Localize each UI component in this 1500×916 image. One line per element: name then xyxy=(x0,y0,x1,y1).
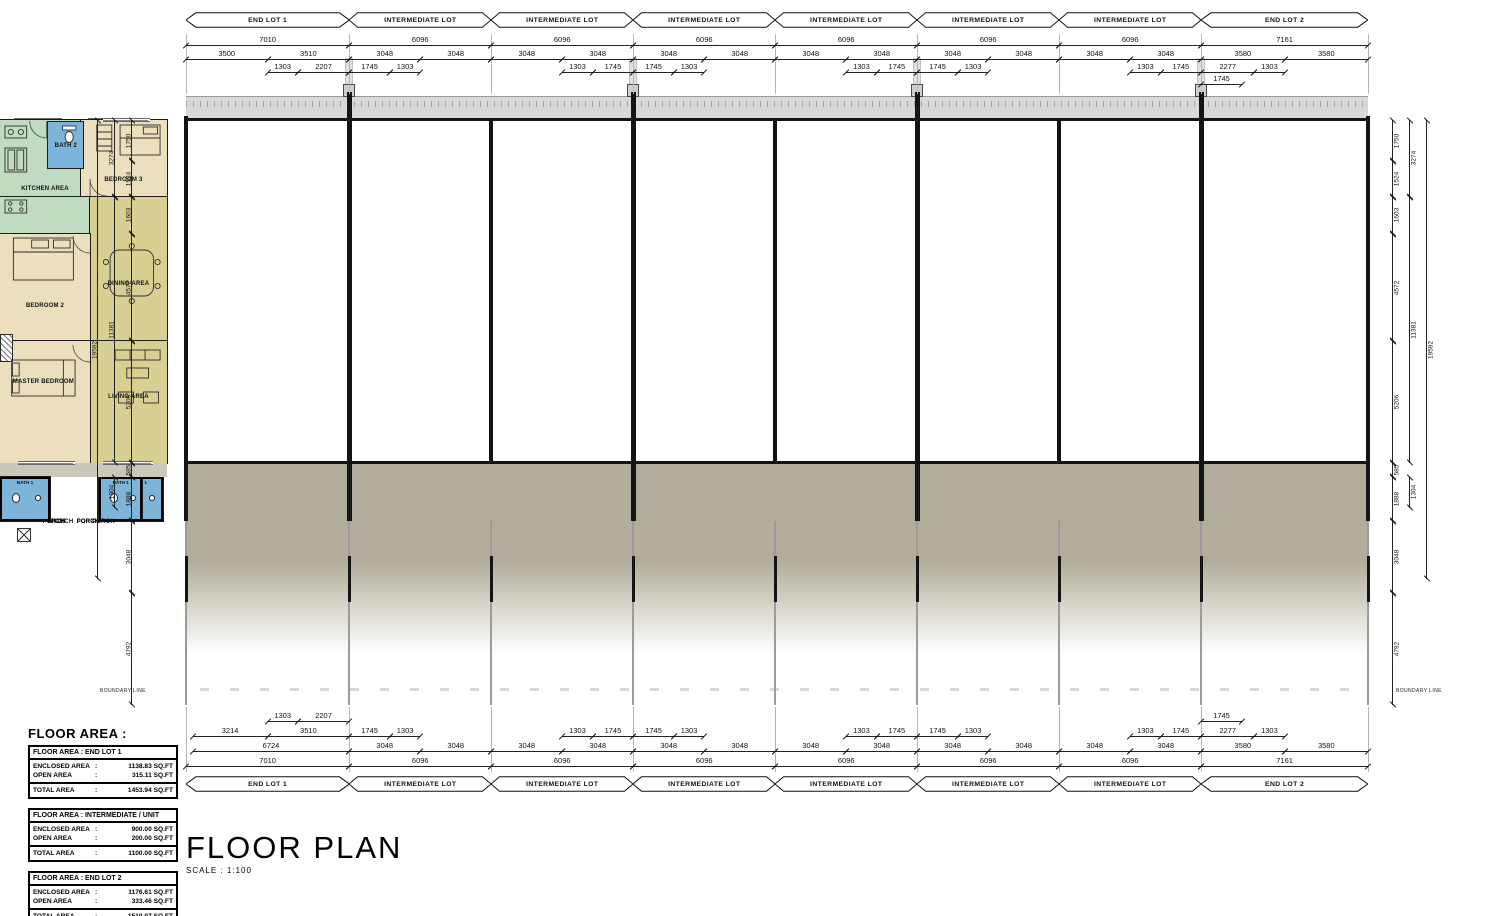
porch-divider xyxy=(490,521,492,705)
sink-icon xyxy=(35,495,41,501)
dimension-value: 3048 xyxy=(1015,741,1032,750)
dimension-value: 1750 xyxy=(1394,133,1401,147)
dimension-value: 2207 xyxy=(315,711,332,720)
dimension-value: 1745 xyxy=(605,62,622,71)
dimension-value: 1603 xyxy=(126,208,133,222)
lot-banner-label: INTERMEDIATE LOT xyxy=(633,12,775,28)
window-line xyxy=(103,120,148,121)
dimension-segment: 1303 xyxy=(958,727,988,737)
dimension-value: 4572 xyxy=(126,281,133,295)
dimension-value: 3274 xyxy=(1411,151,1418,165)
lot-banner-label: INTERMEDIATE LOT xyxy=(491,776,633,792)
dimension-segment: 6096 xyxy=(917,757,1059,767)
porch-column-marker xyxy=(17,528,31,542)
porch-divider-wall xyxy=(1367,556,1370,602)
dimension-value: 3510 xyxy=(300,726,317,735)
lot-banner-label: INTERMEDIATE LOT xyxy=(917,12,1059,28)
dimension-segment: 1303 xyxy=(1130,727,1160,737)
dimension-segment: 1303 xyxy=(562,63,592,73)
dimension-value: 6096 xyxy=(1122,35,1139,44)
dimension-segment: 1745 xyxy=(917,727,958,737)
dimension-value: 3048 xyxy=(376,49,393,58)
room-bedroom3 xyxy=(80,120,167,197)
porch-divider-wall xyxy=(1200,556,1203,602)
dimension-value: 1303 xyxy=(1261,62,1278,71)
grass-texture xyxy=(200,688,1360,691)
dimension-segment: 1303 xyxy=(958,63,988,73)
dimension-value: 3500 xyxy=(218,49,235,58)
dimension-segment: 7161 xyxy=(1201,757,1368,767)
porch-divider xyxy=(632,521,634,705)
room-label-master: MASTER BEDROOM xyxy=(13,379,74,385)
dimension-segment: 3048 xyxy=(704,742,775,752)
lot-banner-label: INTERMEDIATE LOT xyxy=(349,12,491,28)
table-row: ENCLOSED AREA:1138.83 SQ.FT xyxy=(33,762,173,771)
dimension-segment-vertical: 5206 xyxy=(131,341,132,463)
dimension-value: 3048 xyxy=(518,49,535,58)
dimension-value: 1745 xyxy=(1173,726,1190,735)
dimension-segment: 3580 xyxy=(1201,742,1284,752)
porch-divider-wall xyxy=(348,556,351,602)
dimension-segment: 7161 xyxy=(1201,36,1368,46)
dimension-value: 3048 xyxy=(589,49,606,58)
dimension-value: 1745 xyxy=(889,62,906,71)
dimension-segment: 6096 xyxy=(491,36,633,46)
table-total-row: TOTAL AREA:1100.00 SQ.FT xyxy=(33,849,173,858)
dimension-value: 585 xyxy=(1394,465,1401,476)
dimension-segment: 6096 xyxy=(1059,757,1201,767)
table-row: OPEN AREA:333.46 SQ.FT xyxy=(33,897,173,906)
dimension-segment: 6096 xyxy=(917,36,1059,46)
dimension-value: 1745 xyxy=(361,726,378,735)
dimension-value: 1745 xyxy=(889,726,906,735)
dimension-segment: 1303 xyxy=(846,727,876,737)
lot-banner-label: INTERMEDIATE LOT xyxy=(633,776,775,792)
room-label-bedroom3: BEDROOM 3 xyxy=(104,177,142,183)
dimension-segment-vertical: 4572 xyxy=(131,234,132,341)
dimension-value: 6096 xyxy=(554,756,571,765)
dimension-value: 1303 xyxy=(397,62,414,71)
party-wall xyxy=(489,118,493,464)
boundary-line-label-right: BOUNDARY LINE xyxy=(1396,688,1442,694)
dimension-segment: 1745 xyxy=(349,63,390,73)
scale-note: SCALE : 1:100 xyxy=(186,866,402,875)
table-total-row: TOTAL AREA:1453.94 SQ.FT xyxy=(33,786,173,795)
dimension-value: 3580 xyxy=(1235,741,1252,750)
dimension-value: 1745 xyxy=(645,62,662,71)
dimension-segment: 3048 xyxy=(775,50,846,60)
dimension-segment: 1745 xyxy=(1201,75,1242,85)
dimension-value: 3274 xyxy=(109,151,116,165)
porch-divider xyxy=(1200,521,1202,705)
toilet-icon xyxy=(12,493,20,503)
dimension-value: 3580 xyxy=(1318,741,1335,750)
dimension-value: 1303 xyxy=(965,726,982,735)
dimension-segment: 1745 xyxy=(1161,727,1202,737)
dimension-value: 7010 xyxy=(259,35,276,44)
room-apron xyxy=(0,463,167,477)
dimension-segment: 7010 xyxy=(186,36,349,46)
lot-banner-1: END LOT 1 xyxy=(186,776,349,792)
porch-divider xyxy=(348,521,350,705)
dimension-segment: 1303 xyxy=(562,727,592,737)
dimension-segment: 3048 xyxy=(846,50,917,60)
dimension-segment: 1745 xyxy=(593,727,634,737)
lot-banner-3: INTERMEDIATE LOT xyxy=(491,776,633,792)
dimension-value: 3048 xyxy=(447,49,464,58)
dimension-segment-vertical: 1603 xyxy=(1392,197,1393,235)
dimension-segment: 1745 xyxy=(877,727,918,737)
dimension-segment: 6096 xyxy=(491,757,633,767)
party-wall xyxy=(773,118,777,464)
lot-banner-6: INTERMEDIATE LOT xyxy=(917,776,1059,792)
dimension-segment: 3500 xyxy=(186,50,268,60)
dimension-value: 1303 xyxy=(274,62,291,71)
dimension-segment-vertical: 1524 xyxy=(1392,161,1393,197)
dimension-value: 3580 xyxy=(1318,49,1335,58)
dimension-segment-vertical: 3048 xyxy=(1392,521,1393,592)
dimension-value: 1304 xyxy=(1411,485,1418,499)
dimension-value: 1745 xyxy=(929,62,946,71)
lot-banner-8: END LOT 2 xyxy=(1201,776,1368,792)
dimension-segment: 2277 xyxy=(1201,727,1254,737)
window xyxy=(103,118,150,122)
floor-area-heading: FLOOR AREA : xyxy=(28,726,178,741)
dimension-value: 3048 xyxy=(802,49,819,58)
lot-banner-label: INTERMEDIATE LOT xyxy=(491,12,633,28)
dimension-value: 3048 xyxy=(1394,550,1401,564)
dimension-value: 3580 xyxy=(1235,49,1252,58)
dimension-value: 1888 xyxy=(1394,492,1401,506)
room-label-bedroom2: BEDROOM 2 xyxy=(26,303,64,309)
dimension-value: 1303 xyxy=(1137,726,1154,735)
dimension-segment: 3580 xyxy=(1285,742,1368,752)
lot-banner-label: INTERMEDIATE LOT xyxy=(349,776,491,792)
porch-divider-wall xyxy=(185,556,188,602)
room-bedroom2 xyxy=(0,234,90,341)
dimension-value: 6096 xyxy=(1122,756,1139,765)
dimension-segment: 1303 xyxy=(1254,727,1284,737)
table-row: ENCLOSED AREA:900.00 SQ.FT xyxy=(33,825,173,834)
dimension-segment: 6096 xyxy=(349,36,491,46)
dimension-value: 3048 xyxy=(944,49,961,58)
table-total-row: TOTAL AREA:1510.07 SQ.FT xyxy=(33,912,173,916)
dimension-segment-vertical: 1524 xyxy=(131,161,132,197)
party-wall xyxy=(631,92,636,521)
porch-ground xyxy=(186,463,1368,562)
dimension-segment: 3510 xyxy=(268,727,350,737)
dimension-value: 2277 xyxy=(1219,62,1236,71)
dimension-value: 1888 xyxy=(126,492,133,506)
floor-area-table-intermediate: FLOOR AREA : INTERMEDIATE / UNIT ENCLOSE… xyxy=(28,808,178,862)
dimension-value: 1524 xyxy=(1394,172,1401,186)
dimension-value: 1524 xyxy=(126,172,133,186)
lot-banner-label: END LOT 2 xyxy=(1201,12,1368,28)
dimension-value: 6096 xyxy=(838,756,855,765)
dimension-value: 1304 xyxy=(109,485,116,499)
vent-hatch xyxy=(0,334,13,362)
room-bath1: BATH 1 xyxy=(0,477,50,521)
dimension-value: 3048 xyxy=(1086,741,1103,750)
dimension-segment: 6096 xyxy=(349,757,491,767)
party-wall xyxy=(1199,92,1204,521)
room-label-kitchen: KITCHEN AREA xyxy=(21,186,69,192)
lot-banner-4: INTERMEDIATE LOT xyxy=(633,776,775,792)
dimension-segment: 3048 xyxy=(988,742,1059,752)
lot-banner-4: INTERMEDIATE LOT xyxy=(633,12,775,28)
dimension-value: 3048 xyxy=(126,550,133,564)
dimension-segment: 3048 xyxy=(491,742,562,752)
dimension-value: 1750 xyxy=(126,133,133,147)
floor-plan-drawing: FLOOR AREA : FLOOR AREA : END LOT 1 ENCL… xyxy=(0,0,1500,916)
dimension-segment: 6096 xyxy=(1059,36,1201,46)
dimension-segment: 6096 xyxy=(633,36,775,46)
extension-line xyxy=(1368,707,1369,772)
page-title: FLOOR PLAN xyxy=(186,830,402,866)
dimension-segment: 3048 xyxy=(349,742,420,752)
dimension-value: 3048 xyxy=(660,741,677,750)
dimension-value: 6724 xyxy=(263,741,280,750)
dimension-segment-vertical: 11381 xyxy=(114,197,115,464)
lot-banner-label: END LOT 2 xyxy=(1201,776,1368,792)
floor-area-table-end-lot-1: FLOOR AREA : END LOT 1 ENCLOSED AREA:113… xyxy=(28,745,178,799)
dimension-segment: 3580 xyxy=(1201,50,1284,60)
porch-divider-wall xyxy=(916,556,919,602)
dimension-segment: 3048 xyxy=(704,50,775,60)
dimension-value: 6096 xyxy=(696,35,713,44)
dimension-segment-vertical: 3274 xyxy=(1409,120,1410,197)
dimension-segment-vertical: 1888 xyxy=(1392,477,1393,521)
dimension-value: 3510 xyxy=(300,49,317,58)
lot-banner-2: INTERMEDIATE LOT xyxy=(349,12,491,28)
dimension-segment-vertical: 3274 xyxy=(114,120,115,197)
dimension-segment: 1303 xyxy=(268,712,298,722)
dimension-segment: 3048 xyxy=(420,742,491,752)
party-wall xyxy=(1057,118,1061,464)
floor-area-table-end-lot-2: FLOOR AREA : END LOT 2 ENCLOSED AREA:117… xyxy=(28,871,178,916)
party-wall xyxy=(915,92,920,521)
porch-divider xyxy=(916,521,918,705)
dimension-segment: 3048 xyxy=(917,742,988,752)
dimension-value: 3048 xyxy=(518,741,535,750)
lot-banner-7: INTERMEDIATE LOT xyxy=(1059,12,1201,28)
dimension-value: 1745 xyxy=(361,62,378,71)
dimension-segment-vertical: 5206 xyxy=(1392,341,1393,463)
dimension-segment: 6724 xyxy=(193,742,350,752)
lot-banner-5: INTERMEDIATE LOT xyxy=(775,12,917,28)
dimension-segment: 1745 xyxy=(1161,63,1202,73)
dimension-value: 1745 xyxy=(645,726,662,735)
table-row: ENCLOSED AREA:1176.61 SQ.FT xyxy=(33,888,173,897)
dimension-segment-vertical: 1750 xyxy=(1392,120,1393,161)
dimension-segment: 1303 xyxy=(846,63,876,73)
dimension-value: 3048 xyxy=(1086,49,1103,58)
dimension-value: 3048 xyxy=(1157,741,1174,750)
lot-banner-7: INTERMEDIATE LOT xyxy=(1059,776,1201,792)
room-label-bath1: BATH 1 xyxy=(17,480,33,485)
dimension-segment: 3048 xyxy=(349,50,420,60)
window xyxy=(18,461,75,465)
dimension-value: 1303 xyxy=(681,726,698,735)
dimension-segment-vertical: 1603 xyxy=(131,197,132,235)
dimension-value: 1303 xyxy=(397,726,414,735)
dimension-segment-vertical: 1888 xyxy=(131,477,132,521)
dimension-segment: 1745 xyxy=(1201,712,1242,722)
dimension-value: 3048 xyxy=(731,741,748,750)
lot-banner-label: END LOT 1 xyxy=(186,776,349,792)
dimension-value: 6096 xyxy=(980,756,997,765)
room-label-porch: PORCH xyxy=(92,519,115,525)
floor-area-panel: FLOOR AREA : FLOOR AREA : END LOT 1 ENCL… xyxy=(28,726,178,916)
dimension-segment: 3048 xyxy=(633,742,704,752)
dimension-segment: 6096 xyxy=(633,757,775,767)
dimension-value: 1303 xyxy=(681,62,698,71)
dimension-value: 3048 xyxy=(731,49,748,58)
dimension-segment: 3048 xyxy=(633,50,704,60)
porch-divider-wall xyxy=(632,556,635,602)
dimension-segment: 7010 xyxy=(186,757,349,767)
dimension-value: 5206 xyxy=(126,395,133,409)
dimension-value: 6096 xyxy=(412,756,429,765)
dimension-segment: 3048 xyxy=(1059,50,1130,60)
dimension-value: 3048 xyxy=(802,741,819,750)
sink-icon xyxy=(149,495,155,501)
room-kitchenLow xyxy=(0,197,90,234)
table-row: OPEN AREA:315.11 SQ.FT xyxy=(33,771,173,780)
dimension-value: 19592 xyxy=(1428,340,1435,358)
dimension-value: 2207 xyxy=(315,62,332,71)
dimension-segment: 3048 xyxy=(562,50,633,60)
dimension-value: 3048 xyxy=(873,741,890,750)
porch-divider xyxy=(185,521,187,705)
dimension-segment: 3048 xyxy=(562,742,633,752)
dimension-value: 1303 xyxy=(1137,62,1154,71)
dimension-value: 3048 xyxy=(660,49,677,58)
dimension-segment: 1303 xyxy=(674,63,704,73)
dimension-value: 11381 xyxy=(109,321,116,339)
dimension-value: 3048 xyxy=(589,741,606,750)
dimension-value: 2277 xyxy=(1219,726,1236,735)
porch-divider-wall xyxy=(490,556,493,602)
lot-banner-label: INTERMEDIATE LOT xyxy=(1059,776,1201,792)
table-title: FLOOR AREA : INTERMEDIATE / UNIT xyxy=(33,812,173,819)
dimension-segment: 3048 xyxy=(846,742,917,752)
dimension-value: 7161 xyxy=(1276,35,1293,44)
dimension-segment: 2277 xyxy=(1201,63,1254,73)
dimension-value: 5206 xyxy=(1394,395,1401,409)
dimension-segment: 3048 xyxy=(775,742,846,752)
dimension-segment: 3214 xyxy=(193,727,268,737)
dimension-value: 3214 xyxy=(222,726,239,735)
porch-divider-wall xyxy=(774,556,777,602)
boundary-line-label-left: BOUNDARY LINE xyxy=(100,688,146,694)
lot-banner-label: INTERMEDIATE LOT xyxy=(775,12,917,28)
lot-banner-1: END LOT 1 xyxy=(186,12,349,28)
dimension-segment: 6096 xyxy=(775,36,917,46)
dimension-value: 1303 xyxy=(853,62,870,71)
dimension-segment: 1303 xyxy=(1254,63,1284,73)
window-line xyxy=(18,463,73,464)
end-wall xyxy=(184,116,188,521)
fence-ticks xyxy=(186,101,1368,107)
dimension-value: 1745 xyxy=(929,726,946,735)
back-lane-band xyxy=(186,96,1368,120)
dimension-segment: 1745 xyxy=(877,63,918,73)
dimension-value: 4572 xyxy=(1394,281,1401,295)
dimension-segment-vertical: 4572 xyxy=(1392,234,1393,341)
porch-divider xyxy=(1058,521,1060,705)
end-wall xyxy=(1366,116,1370,521)
dimension-segment: 1745 xyxy=(917,63,958,73)
lot-banner-2: INTERMEDIATE LOT xyxy=(349,776,491,792)
dimension-segment: 2207 xyxy=(298,63,349,73)
dimension-value: 1303 xyxy=(965,62,982,71)
drawing-title-block: FLOOR PLAN SCALE : 1:100 xyxy=(186,830,402,875)
dimension-segment: 1303 xyxy=(390,63,420,73)
dimension-value: 1303 xyxy=(569,62,586,71)
dimension-segment: 1303 xyxy=(268,63,298,73)
lot-banner-label: INTERMEDIATE LOT xyxy=(917,776,1059,792)
dimension-value: 6096 xyxy=(696,756,713,765)
table-row: OPEN AREA:200.00 SQ.FT xyxy=(33,834,173,843)
lot-banner-8: END LOT 2 xyxy=(1201,12,1368,28)
dimension-segment-vertical: 3048 xyxy=(131,521,132,592)
room-bath1: BATH 1 xyxy=(99,477,142,521)
dimension-segment: 1745 xyxy=(633,727,674,737)
dimension-segment: 1745 xyxy=(633,63,674,73)
dimension-value: 6096 xyxy=(838,35,855,44)
table-title: FLOOR AREA : END LOT 2 xyxy=(33,875,173,882)
dimension-value: 3048 xyxy=(1157,49,1174,58)
dimension-segment-vertical: 19592 xyxy=(1426,120,1427,579)
dimension-value: 1303 xyxy=(569,726,586,735)
dimension-segment: 6096 xyxy=(775,757,917,767)
dimension-value: 3048 xyxy=(447,741,464,750)
dimension-value: 6096 xyxy=(554,35,571,44)
dimension-value: 1745 xyxy=(1213,711,1230,720)
dimension-segment: 1745 xyxy=(593,63,634,73)
dimension-value: 7161 xyxy=(1276,756,1293,765)
dimension-value: 1303 xyxy=(274,711,291,720)
dimension-segment: 3048 xyxy=(988,50,1059,60)
dimension-segment: 1303 xyxy=(1130,63,1160,73)
dimension-value: 1745 xyxy=(1213,74,1230,83)
dimension-segment: 1745 xyxy=(349,727,390,737)
dimension-value: 3048 xyxy=(873,49,890,58)
room-label-bath2: BATH 2 xyxy=(55,143,77,149)
dimension-segment-vertical: 4792 xyxy=(1392,593,1393,705)
dimension-value: 1745 xyxy=(605,726,622,735)
dimension-value: 6096 xyxy=(980,35,997,44)
dimension-segment: 3048 xyxy=(420,50,491,60)
dimension-value: 1603 xyxy=(1394,208,1401,222)
dimension-value: 1303 xyxy=(1261,726,1278,735)
dimension-value: 19592 xyxy=(92,340,99,358)
dimension-segment: 3048 xyxy=(917,50,988,60)
driveway-fade xyxy=(186,562,1368,670)
dimension-segment-vertical: 19592 xyxy=(97,120,98,579)
dimension-segment: 3048 xyxy=(1130,50,1201,60)
lot-banner-3: INTERMEDIATE LOT xyxy=(491,12,633,28)
dimension-segment: 1303 xyxy=(674,727,704,737)
dimension-value: 1745 xyxy=(1173,62,1190,71)
dimension-segment-vertical: 1304 xyxy=(1409,477,1410,508)
dimension-segment: 3580 xyxy=(1285,50,1368,60)
dimension-segment: 3048 xyxy=(1059,742,1130,752)
dimension-value: 3048 xyxy=(944,741,961,750)
dimension-segment-vertical: 1304 xyxy=(114,477,115,508)
dimension-segment: 2207 xyxy=(298,712,349,722)
